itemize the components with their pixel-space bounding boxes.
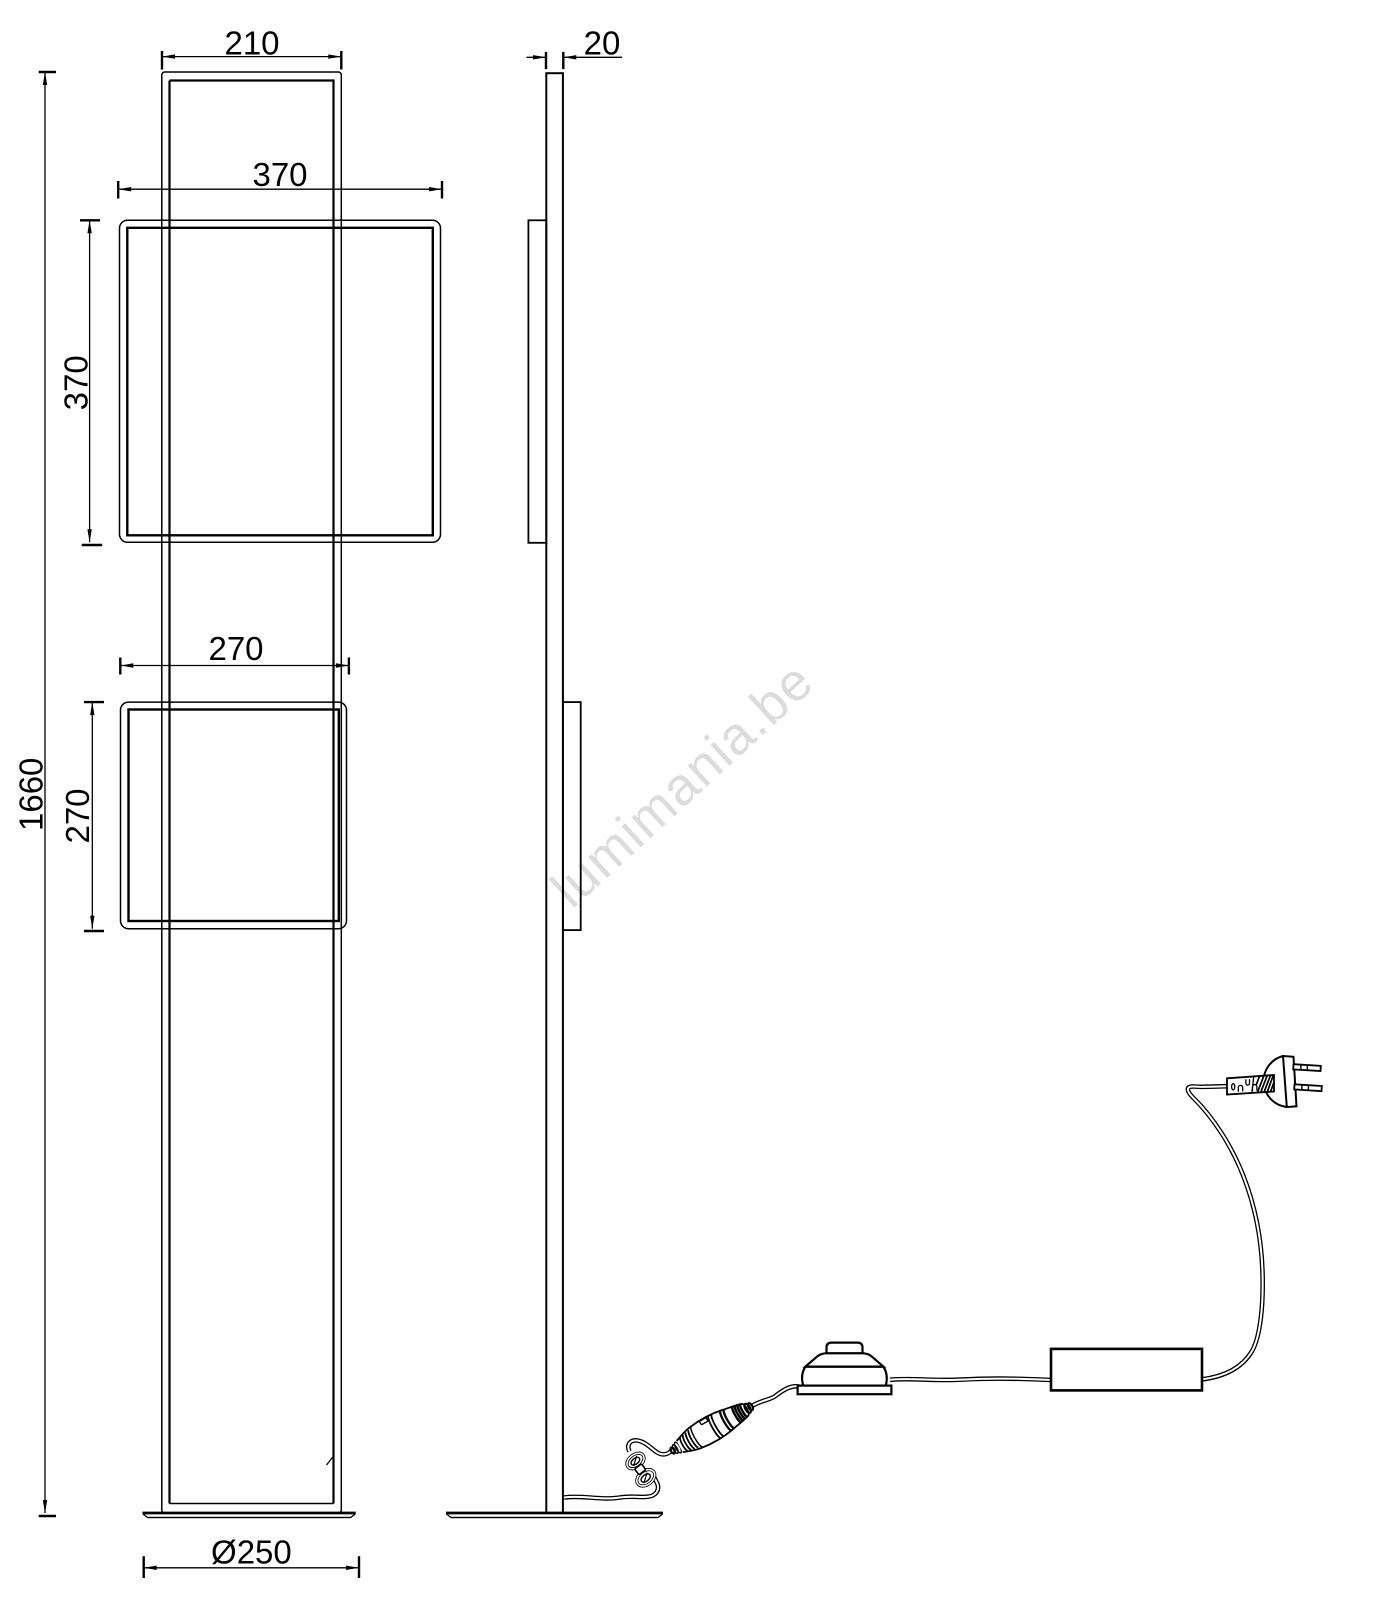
svg-text:20: 20 xyxy=(584,25,621,62)
svg-text:370: 370 xyxy=(58,355,95,410)
svg-text:370: 370 xyxy=(252,156,307,193)
svg-text:210: 210 xyxy=(224,25,279,62)
svg-text:270: 270 xyxy=(59,788,96,843)
svg-text:270: 270 xyxy=(208,630,263,667)
svg-text:1660: 1660 xyxy=(13,758,50,831)
svg-text:Ø250: Ø250 xyxy=(211,1533,292,1570)
